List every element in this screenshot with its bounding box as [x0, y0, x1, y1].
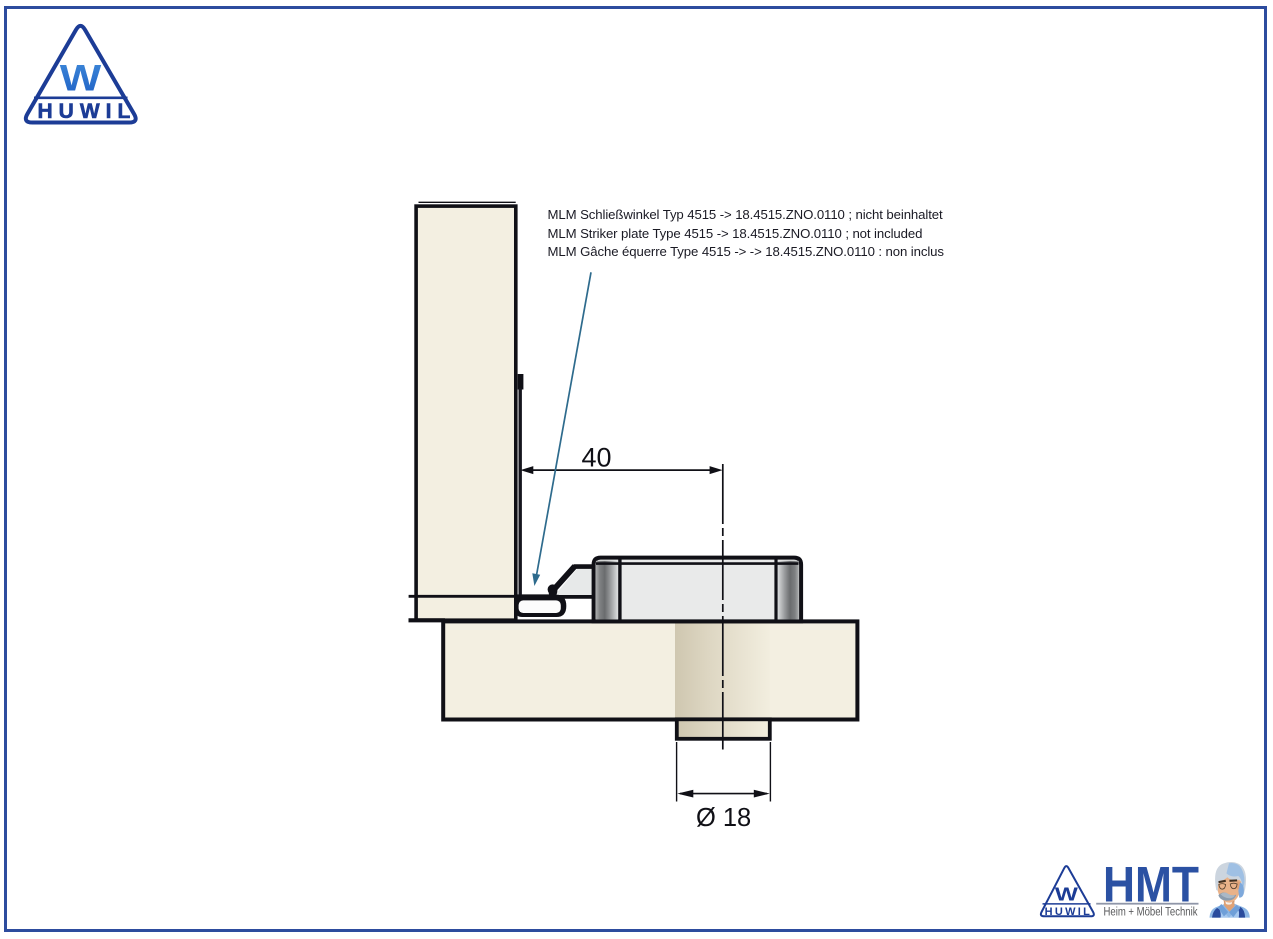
- svg-text:HUWIL: HUWIL: [38, 100, 137, 123]
- svg-text:Ø 18: Ø 18: [696, 804, 751, 832]
- svg-text:Heim + Möbel Technik: Heim + Möbel Technik: [1104, 904, 1199, 918]
- svg-text:HUWIL: HUWIL: [1045, 906, 1093, 918]
- svg-text:W: W: [60, 58, 102, 99]
- svg-text:40: 40: [581, 443, 611, 473]
- svg-text:W: W: [1055, 883, 1079, 904]
